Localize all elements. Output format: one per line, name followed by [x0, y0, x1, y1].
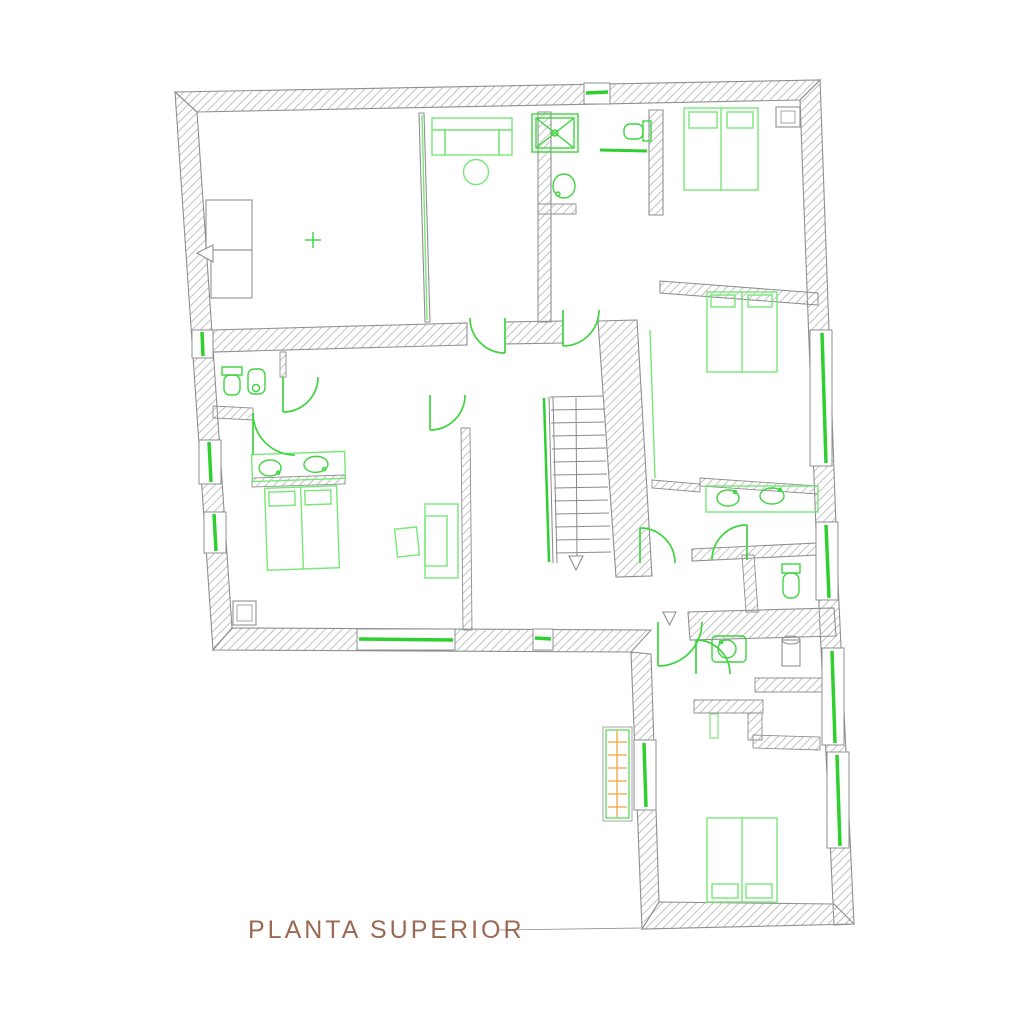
bath-top-step-wall	[538, 204, 576, 214]
mr-bath-south-wall	[692, 543, 818, 561]
ventilation-grille-icon	[603, 727, 632, 821]
door-swing-icon	[430, 395, 465, 430]
window-icon	[827, 752, 849, 848]
double-bed-icon	[684, 108, 758, 190]
washbasin-icon	[553, 174, 575, 198]
sofa-icon	[432, 118, 512, 155]
lm-bath-south-wall	[213, 406, 253, 420]
window-icon	[533, 629, 553, 650]
wing-bath-south-wall	[694, 700, 763, 713]
window-icon	[192, 330, 213, 358]
toilet-icon	[782, 636, 800, 666]
window-icon	[584, 83, 610, 104]
double-bed-icon	[265, 486, 340, 570]
toilet-icon	[782, 564, 800, 598]
lm-bath-east-wall	[280, 352, 286, 377]
corridor-wall-mid	[505, 321, 563, 344]
outer-walls	[175, 80, 854, 929]
floor-plan-canvas: PLANTA SUPERIOR	[0, 0, 1024, 1024]
interior-walls	[213, 110, 836, 750]
hall-south-thin-wall	[652, 480, 700, 492]
furniture	[197, 108, 818, 902]
wing-bottom-wall	[642, 902, 854, 929]
bottom-left-column-inner	[237, 605, 252, 621]
main-wing-divider-wall	[688, 608, 836, 640]
washbasin-icon	[712, 636, 746, 662]
closet-shelf	[710, 714, 718, 738]
window-icon	[204, 512, 226, 553]
wardrobe-front-line	[650, 330, 655, 478]
door-swing-icon	[696, 640, 730, 674]
shelf-line	[600, 150, 647, 151]
toilet-icon	[222, 367, 242, 395]
hall-bedroom-divider	[461, 428, 472, 630]
wing-closet-wall-b	[753, 735, 820, 750]
window-icon	[822, 648, 844, 745]
door-swing-icon	[563, 310, 599, 346]
window-icon	[810, 330, 832, 466]
bottom-left-column	[233, 601, 256, 625]
stair-direction-arrow	[569, 556, 583, 570]
plan-title: PLANTA SUPERIOR	[248, 916, 525, 944]
corridor-wall-west	[213, 323, 467, 352]
floor-plan-page: PLANTA SUPERIOR	[0, 0, 1024, 1024]
door-swing-icon	[470, 318, 505, 353]
window-icon	[199, 440, 221, 484]
staircase-down-icon	[544, 396, 611, 570]
stair-east-wall	[598, 320, 652, 577]
top-right-column-inner	[781, 111, 795, 123]
bath-top-left-wall	[538, 112, 551, 322]
bidet-icon	[248, 369, 265, 394]
top-right-column	[776, 107, 800, 127]
center-cross-marker-icon	[305, 232, 321, 248]
top-wall	[175, 80, 820, 112]
window-icon	[634, 740, 656, 810]
mr-wc-divider	[742, 555, 758, 612]
door-swing-icon	[283, 377, 318, 412]
door-swing-icon	[253, 413, 295, 455]
tr-bedroom-south-wall	[660, 281, 818, 305]
sofa-icon	[425, 504, 458, 578]
toilet-icon	[624, 121, 651, 141]
double-bed-icon	[707, 292, 777, 372]
round-table-icon	[464, 160, 489, 185]
side-table-icon	[395, 527, 420, 557]
window-icon	[357, 629, 455, 650]
wing-entry-arrow	[663, 612, 676, 625]
double-bed-icon	[707, 818, 777, 902]
left-wall	[175, 92, 232, 650]
window-icon	[816, 522, 838, 600]
